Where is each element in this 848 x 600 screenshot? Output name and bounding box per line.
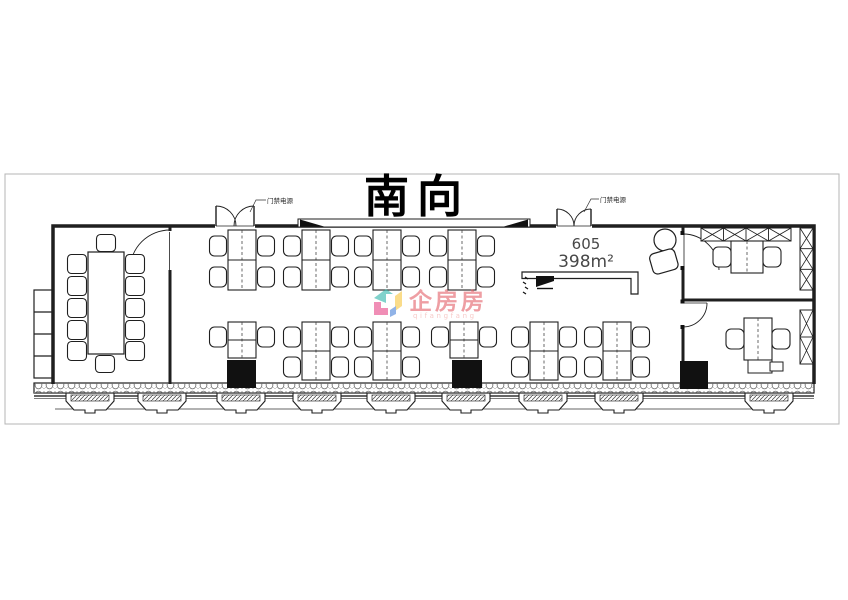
chair — [560, 327, 577, 347]
cabinet — [800, 310, 813, 364]
chair — [284, 327, 301, 347]
chair — [585, 357, 602, 377]
chair — [332, 236, 349, 256]
column — [452, 360, 482, 388]
chair — [355, 236, 372, 256]
chair — [355, 267, 372, 287]
ac-platform — [442, 392, 490, 413]
chair — [512, 327, 529, 347]
floor-plan-image: 门禁电源 门禁电源 — [0, 0, 848, 600]
chair — [68, 321, 87, 340]
chair — [633, 357, 650, 377]
chair — [726, 329, 744, 349]
chair — [512, 357, 529, 377]
chair — [585, 327, 602, 347]
chair — [772, 329, 790, 349]
watermark-latin: qifangfang — [413, 312, 477, 320]
chair — [560, 357, 577, 377]
watermark-brand: 企房房 — [408, 288, 487, 315]
chair — [403, 357, 420, 377]
chair — [403, 327, 420, 347]
chair — [403, 236, 420, 256]
ac-platform — [367, 392, 415, 413]
door-label-left-text: 门禁电源 — [267, 196, 294, 205]
chair — [713, 247, 731, 267]
chair — [210, 267, 227, 287]
conference-table — [88, 252, 124, 354]
chair — [355, 357, 372, 377]
chair — [763, 247, 781, 267]
chair — [96, 356, 115, 373]
cabinet — [800, 228, 813, 290]
ac-platform — [138, 392, 186, 413]
ac-platform — [745, 392, 793, 413]
chair — [68, 255, 87, 274]
chair — [126, 321, 145, 340]
chair — [258, 327, 275, 347]
chair — [332, 357, 349, 377]
chair — [210, 236, 227, 256]
column — [227, 360, 256, 388]
chair — [480, 327, 497, 347]
ac-platform — [293, 392, 341, 413]
chair — [258, 267, 275, 287]
unit-area: 398m² — [558, 252, 614, 272]
chair — [478, 236, 495, 256]
chair — [355, 327, 372, 347]
chair — [284, 236, 301, 256]
chair — [258, 236, 275, 256]
page-title: 南向 — [364, 170, 470, 223]
chair — [126, 299, 145, 318]
chair — [68, 342, 87, 361]
chair — [478, 267, 495, 287]
chair — [430, 267, 447, 287]
ac-platform — [519, 392, 567, 413]
chair — [97, 235, 116, 252]
column — [680, 361, 708, 389]
chair — [284, 357, 301, 377]
ac-platform — [66, 392, 114, 413]
left-shaft — [34, 290, 53, 378]
conference-room-set — [68, 235, 145, 373]
chair — [633, 327, 650, 347]
ac-platform — [595, 392, 643, 413]
door-label-right-text: 门禁电源 — [600, 195, 627, 204]
unit-number: 605 — [572, 235, 601, 253]
cabinet — [701, 228, 791, 241]
chair — [430, 236, 447, 256]
chair — [332, 327, 349, 347]
floor-plan-svg: 门禁电源 门禁电源 — [0, 0, 848, 600]
chair — [210, 327, 227, 347]
chair — [332, 267, 349, 287]
chair — [126, 277, 145, 296]
chair — [432, 327, 449, 347]
chair — [126, 255, 145, 274]
side-table — [654, 229, 676, 251]
chair — [68, 277, 87, 296]
chair — [284, 267, 301, 287]
ac-platform — [217, 392, 265, 413]
chair — [126, 342, 145, 361]
chair — [403, 267, 420, 287]
chair — [68, 299, 87, 318]
